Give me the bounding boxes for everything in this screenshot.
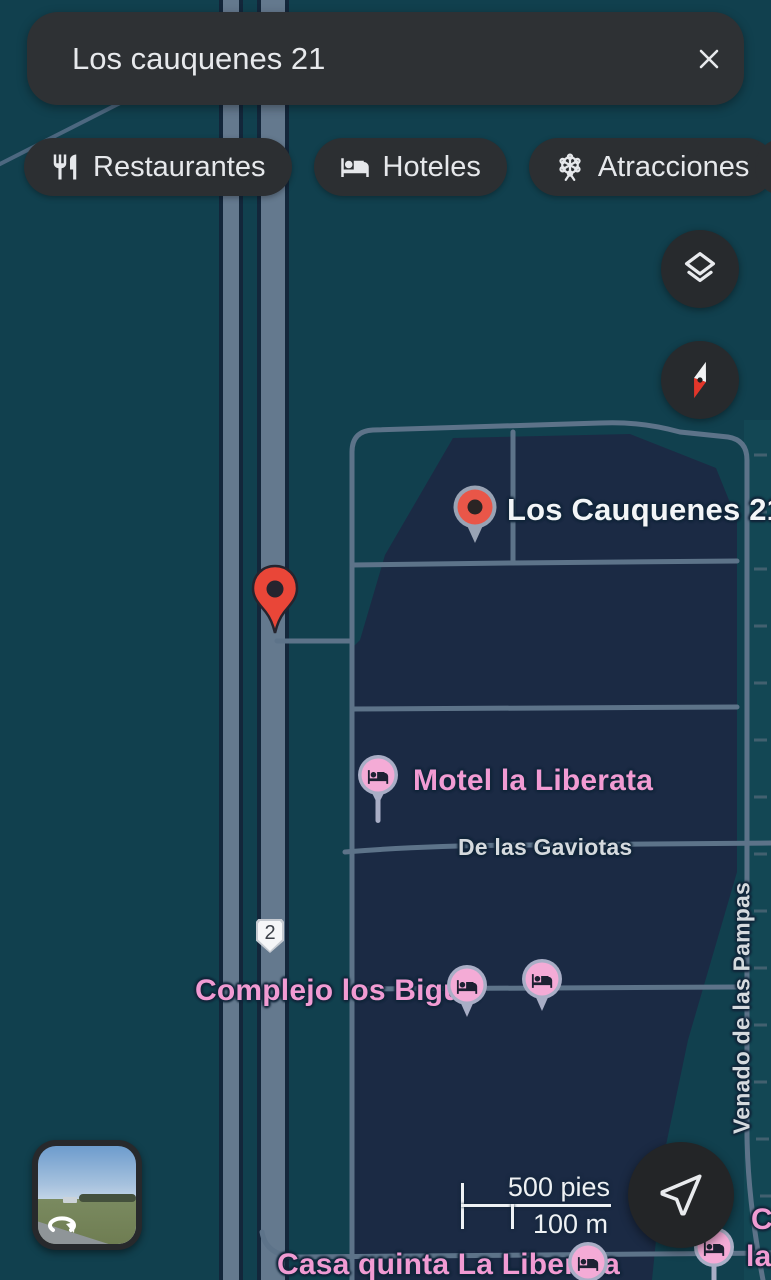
- hotel-label-corner-line2: la: [746, 1240, 771, 1274]
- searched-place-label[interactable]: Los Cauquenes 21: [507, 492, 771, 528]
- route-2-number: 2: [256, 922, 284, 945]
- scale-bar-line: [461, 1204, 611, 1207]
- dropped-red-pin[interactable]: [247, 563, 303, 641]
- hotel-label-complejo[interactable]: Complejo los Bigua: [195, 974, 479, 1008]
- restaurant-icon: [50, 152, 80, 182]
- attractions-icon: [555, 152, 585, 182]
- compass-button[interactable]: [661, 341, 739, 419]
- hotel-label-motel[interactable]: Motel la Liberata: [413, 764, 653, 798]
- street-view-thumbnail[interactable]: [32, 1140, 142, 1250]
- google-maps-screen: Los Cauquenes 21 Motel la Liberata Compl…: [0, 0, 771, 1280]
- scale-metric: 100 m: [440, 1209, 608, 1240]
- hotel-marker-bigua-1[interactable]: [444, 963, 490, 1021]
- layers-button[interactable]: [661, 230, 739, 308]
- hotel-marker-casa[interactable]: [565, 1240, 611, 1280]
- chip-hoteles[interactable]: Hoteles: [314, 138, 507, 196]
- street-view-photo: [38, 1146, 136, 1244]
- layers-icon: [677, 246, 723, 292]
- close-icon: [693, 43, 725, 75]
- chip-atracciones[interactable]: Atracciones: [529, 138, 771, 196]
- compass-icon: [677, 357, 723, 403]
- hotel-marker-bigua-2[interactable]: [519, 957, 565, 1015]
- clear-search-button[interactable]: [674, 12, 744, 105]
- search-bar[interactable]: Los cauquenes 21: [27, 12, 744, 105]
- category-chips: Restaurantes Hoteles Atracciones: [24, 138, 771, 196]
- directions-fab[interactable]: [628, 1142, 734, 1248]
- scale-imperial: 500 pies: [440, 1172, 610, 1203]
- street-label-venado: Venado de las Pampas: [729, 882, 756, 1134]
- navigation-arrow-icon: [656, 1170, 706, 1220]
- chip-hoteles-label: Hoteles: [383, 151, 481, 184]
- hotel-marker-motel[interactable]: [355, 753, 401, 837]
- chip-restaurantes[interactable]: Restaurantes: [24, 138, 292, 196]
- search-input[interactable]: Los cauquenes 21: [27, 41, 674, 77]
- street-label-gaviotas: De las Gaviotas: [458, 834, 632, 861]
- rotate-360-icon: [44, 1212, 80, 1238]
- chip-restaurantes-label: Restaurantes: [93, 151, 266, 184]
- hotel-label-corner-line1: C: [751, 1203, 771, 1237]
- hotel-icon: [340, 152, 370, 182]
- searched-place-pin[interactable]: [449, 483, 501, 545]
- chip-atracciones-label: Atracciones: [598, 151, 750, 184]
